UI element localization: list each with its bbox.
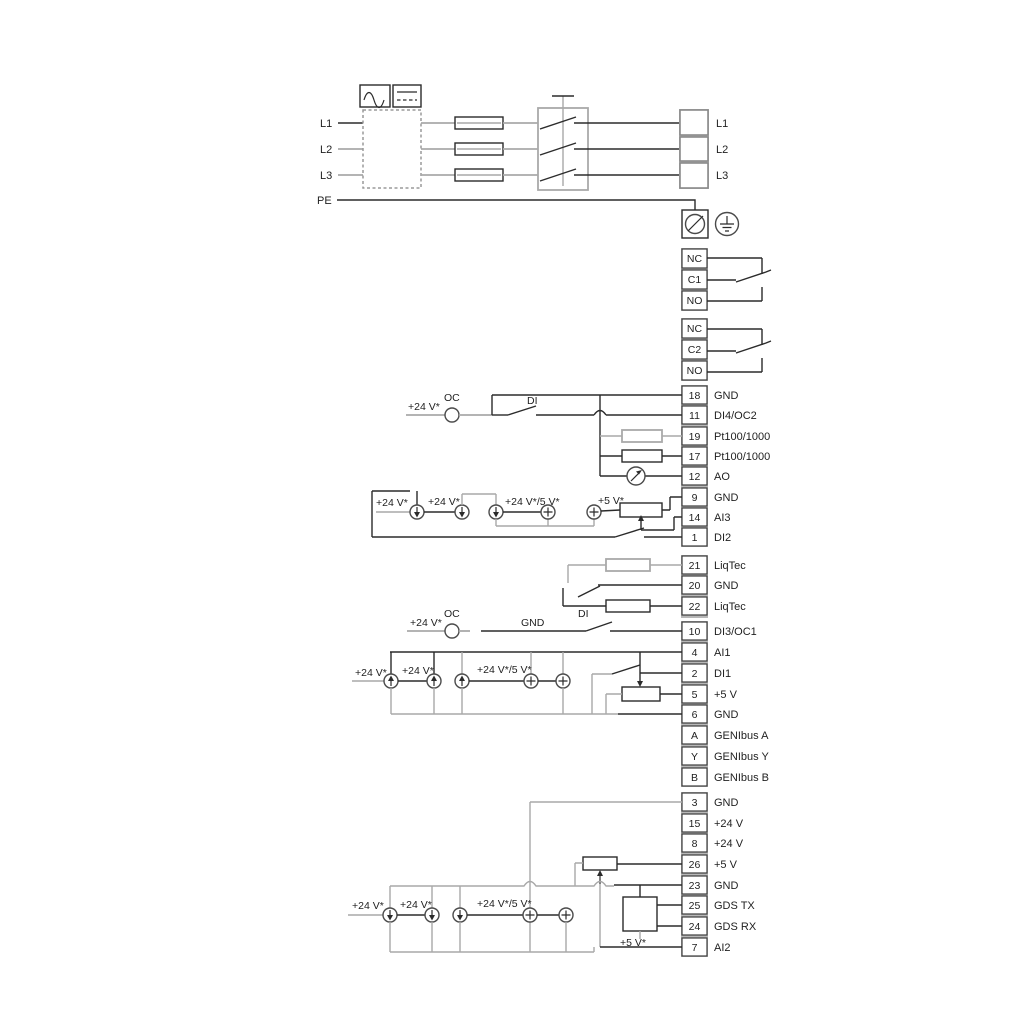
di-label: DI: [527, 395, 538, 407]
switch-blade-di2: [615, 528, 644, 537]
wires-fuse-to-contactor: [503, 123, 540, 175]
liqtec-switch-blade: [578, 586, 600, 597]
pt100-resistor-19: [600, 430, 682, 442]
v24-label: +24 V*: [428, 496, 460, 508]
liqtec-terminal-block: 21 20 22 LiqTec GND LiqTec: [563, 555, 746, 618]
terminal-number: 17: [689, 451, 701, 463]
terminal-number: 22: [689, 601, 701, 613]
v24-5v-label: +24 V*/5 V*: [477, 898, 532, 910]
ac-wave-icon: [360, 85, 390, 108]
terminal-number: 5: [692, 689, 698, 701]
terminal-label: GND: [714, 709, 739, 721]
terminal-number: 25: [689, 900, 701, 912]
terminal-number: B: [691, 772, 698, 784]
voltage-source-icon: [524, 674, 538, 688]
terminal-label: DI2: [714, 532, 731, 544]
terminal-number: 18: [689, 390, 701, 402]
terminal-number: 8: [692, 838, 698, 850]
wire-gnd-18: [492, 395, 682, 415]
groupB-terminal-block: 10 4 2 5 6 A Y B DI3/OC1 AI1 DI1 +5 V GN…: [681, 621, 769, 787]
terminal-number: 21: [689, 560, 701, 572]
liqtec-sensor-21: [568, 559, 682, 583]
dc-icon: [393, 85, 421, 107]
relay1-c1: C1: [688, 274, 702, 286]
potentiometer: [606, 687, 682, 714]
terminal-label: GDS RX: [714, 921, 757, 933]
terminal-label: GDS TX: [714, 900, 755, 912]
terminal-number: 26: [689, 859, 701, 871]
terminal-label: DI3/OC1: [714, 626, 757, 638]
terminal-number: 1: [692, 532, 698, 544]
terminal-number: 12: [689, 471, 701, 483]
power-out-label-l1: L1: [716, 118, 728, 130]
terminal-number: 19: [689, 431, 701, 443]
terminal-number: 10: [689, 626, 701, 638]
terminal-label: Pt100/1000: [714, 431, 770, 443]
relay2-contact-blade: [736, 341, 771, 353]
groupC-wiring: +5 V* +24 V* +24 V* +24 V*/5 V*: [348, 802, 682, 952]
voltage-source-icon: [523, 908, 537, 922]
power-out-label-l3: L3: [716, 170, 728, 182]
relay1-nc: NC: [687, 253, 703, 265]
terminal-label: GND: [714, 580, 739, 592]
wire-di4: [536, 411, 682, 416]
relay1-contact-blade: [736, 270, 771, 282]
gnd-label: GND: [521, 617, 545, 629]
pt100-resistor-17: [600, 450, 682, 462]
relay1-wires: [707, 258, 762, 301]
power-out-label-l2: L2: [716, 144, 728, 156]
wires-contactor-to-terminal: [574, 123, 680, 175]
relay2-no: NO: [687, 365, 703, 377]
potentiometer: [575, 857, 682, 886]
groupA-wiring: +24 V* OC DI +24 V*: [372, 392, 682, 537]
terminal-label: GENIbus Y: [714, 751, 769, 763]
terminal-number: 20: [689, 580, 701, 592]
voltage-source-icon: [541, 505, 555, 519]
terminal-number: 15: [689, 818, 701, 830]
oc-label: OC: [444, 608, 460, 620]
terminal-label: AI2: [714, 942, 731, 954]
terminal-label: +5 V: [714, 689, 738, 701]
earth-icon: [716, 213, 739, 236]
v24-label: +24 V*: [376, 497, 408, 509]
terminal-number: 4: [692, 647, 698, 659]
ao-meter-icon: [600, 467, 682, 485]
fuse-l2: [455, 143, 503, 155]
terminal-label: +5 V: [714, 859, 738, 871]
switch-blade-di1: [612, 665, 640, 674]
terminal-number: 7: [692, 942, 698, 954]
terminal-number: A: [691, 730, 698, 742]
fuse-l3: [455, 169, 503, 181]
voltage-source-icon: [559, 908, 573, 922]
terminal-label: GND: [714, 797, 739, 809]
mains-terminal-block: [679, 109, 709, 189]
relay2-c2: C2: [688, 344, 702, 356]
emc-filter-box: [363, 110, 421, 188]
fuse-l1: [455, 117, 503, 129]
relay1-no: NO: [687, 295, 703, 307]
power-input-section: L1 L2 L3 PE: [317, 85, 739, 238]
relay2-block: NC C2 NO: [681, 318, 771, 381]
terminal-label: AO: [714, 471, 730, 483]
terminal-label: AI3: [714, 512, 731, 524]
v24-label: +24 V*: [410, 617, 442, 629]
terminal-number: 24: [689, 921, 701, 933]
terminal-label: +24 V: [714, 818, 744, 830]
groupB-wiring: +24 V* OC GND DI +24 V* +24 V* +: [352, 608, 682, 714]
wires-filter-to-fuse: [421, 123, 455, 175]
switch-blade-di3: [586, 622, 612, 631]
power-in-label-l3: L3: [320, 170, 332, 182]
open-collector-icon: [445, 408, 459, 422]
wiring-diagram-svg: L1 L2 L3 PE: [0, 0, 1024, 1024]
groupA-sensor-options: +24 V* +24 V* +24 V*/5 V*: [372, 491, 682, 537]
terminal-number: 2: [692, 668, 698, 680]
terminal-label: GND: [714, 492, 739, 504]
terminal-label: GENIbus B: [714, 772, 769, 784]
terminal-label: AI1: [714, 647, 731, 659]
power-in-label-pe: PE: [317, 195, 332, 207]
current-source-icon: [455, 674, 469, 688]
v24-label: +24 V*: [355, 667, 387, 679]
wire-pe: [337, 200, 695, 210]
gds-sensor-box: [623, 885, 682, 939]
terminal-label: Pt100/1000: [714, 451, 770, 463]
power-in-label-l2: L2: [320, 144, 332, 156]
voltage-source-icon: [556, 674, 570, 688]
current-source-icon: [489, 505, 503, 519]
relay2-nc: NC: [687, 323, 703, 335]
terminal-number: 3: [692, 797, 698, 809]
terminal-label: +24 V: [714, 838, 744, 850]
terminal-number: 9: [692, 492, 698, 504]
relay2-wires: [707, 329, 762, 372]
current-source-icon: [453, 908, 467, 922]
relay1-block: NC C1 NO: [681, 248, 771, 311]
v24-label: +24 V*: [352, 900, 384, 912]
terminal-label: GND: [714, 880, 739, 892]
terminal-label: GENIbus A: [714, 730, 769, 742]
terminal-label: DI1: [714, 668, 731, 680]
contactor: [538, 96, 588, 190]
terminal-number: 6: [692, 709, 698, 721]
oc-label: OC: [444, 392, 460, 404]
open-collector-icon: [445, 624, 459, 638]
terminal-number: 23: [689, 880, 701, 892]
groupA-terminal-block: 18 11 19 17 12 9 14 1 GND DI4/OC2 Pt100/…: [681, 385, 770, 547]
terminal-label: DI4/OC2: [714, 410, 757, 422]
voltage-source-icon: [587, 505, 601, 519]
terminal-number: 14: [689, 512, 701, 524]
screw-terminal-icon: [682, 210, 708, 238]
power-in-label-l1: L1: [320, 118, 332, 130]
switch-blade-di4: [508, 406, 536, 415]
v24-label: +24 V*: [408, 401, 440, 413]
groupC-terminal-block: 3 15 8 26 23 25 24 7 GND +24 V +24 V +5 …: [681, 792, 757, 957]
v24-5v-label: +24 V*/5 V*: [477, 664, 532, 676]
terminal-label: LiqTec: [714, 560, 746, 572]
di-label: DI: [578, 608, 589, 620]
wiring-diagram: L1 L2 L3 PE: [0, 0, 1024, 1024]
terminal-number: Y: [691, 751, 698, 763]
terminal-label: LiqTec: [714, 601, 746, 613]
wire-gnd-3: [530, 802, 682, 952]
terminal-number: 11: [689, 410, 700, 422]
terminal-label: GND: [714, 390, 739, 402]
